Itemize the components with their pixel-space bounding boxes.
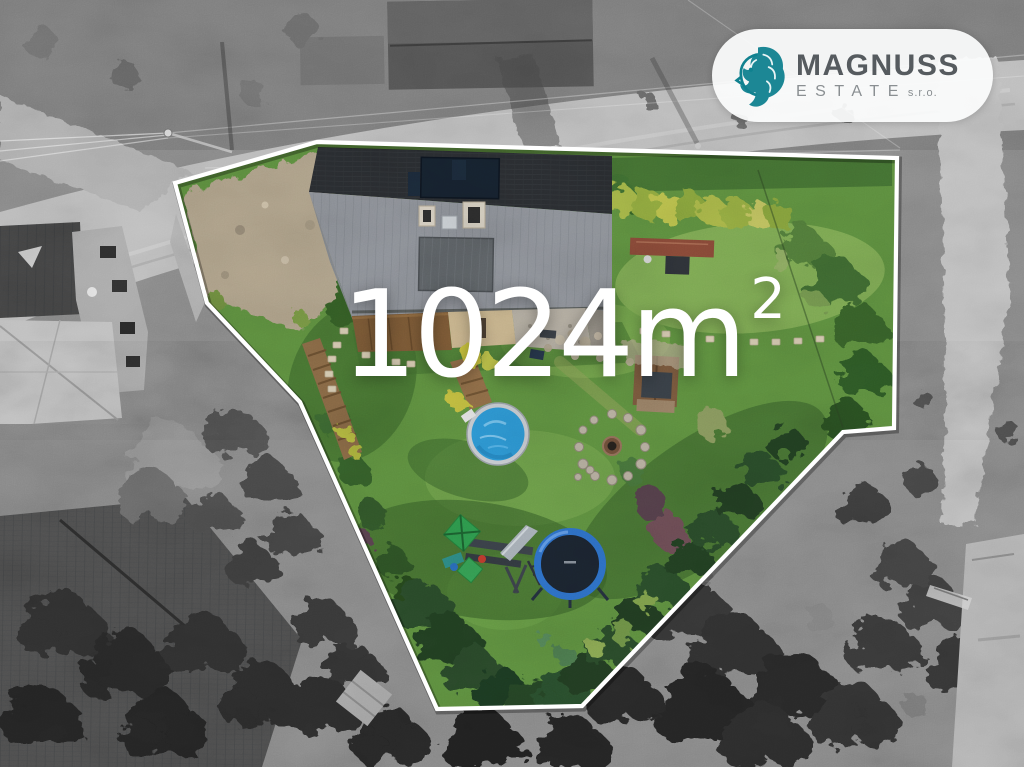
logo-division-text: ESTATE [796, 83, 907, 101]
area-label: 1024m2 [341, 276, 786, 396]
area-value: 1024m [341, 266, 743, 405]
magnuss-estate-logo: MAGNUSS ESTATE s.r.o. [712, 29, 993, 122]
area-exponent: 2 [750, 267, 786, 332]
logo-suffix-text: s.r.o. [908, 87, 938, 99]
aerial-property-photo: 1024m2 MAGNUSS ESTATE s.r.o. [0, 0, 1024, 767]
logo-brand-text: MAGNUSS [796, 50, 960, 82]
lion-icon [726, 42, 790, 110]
